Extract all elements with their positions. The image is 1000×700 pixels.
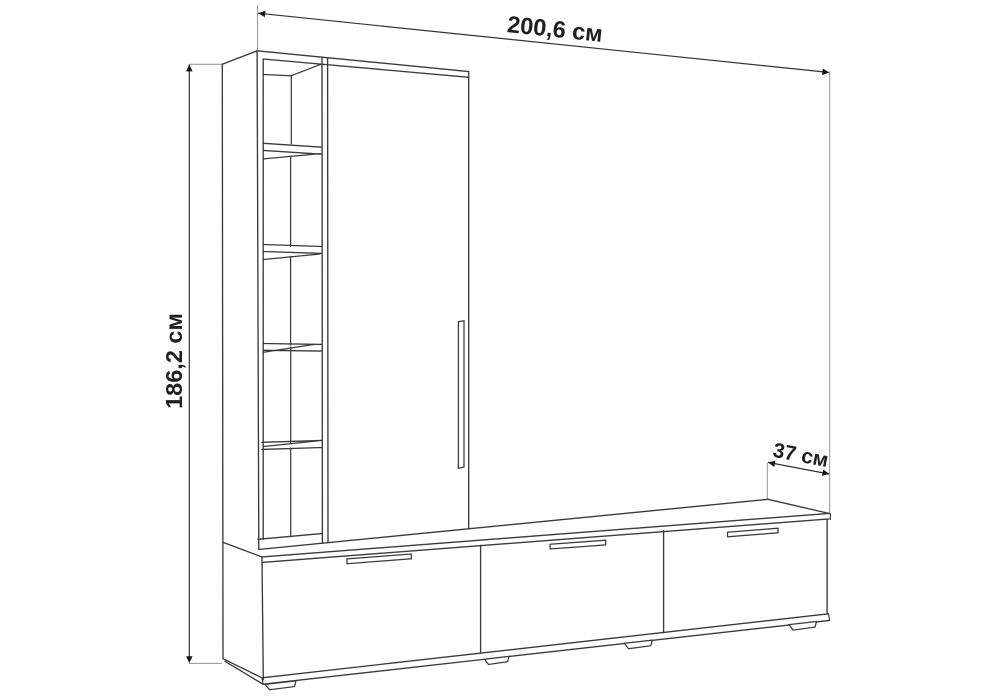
svg-text:186,2 см: 186,2 см	[161, 313, 187, 409]
